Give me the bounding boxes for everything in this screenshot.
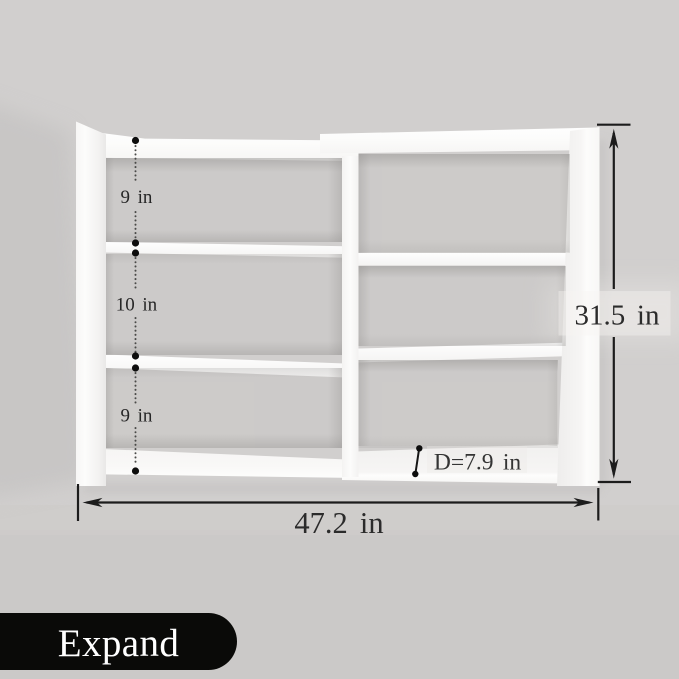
svg-text:10 in: 10 in — [116, 295, 158, 316]
svg-text:9 in: 9 in — [121, 406, 153, 427]
svg-text:31.5 in: 31.5 in — [575, 300, 660, 332]
svg-text:47.2 in: 47.2 in — [294, 506, 383, 540]
svg-text:D=7.9 in: D=7.9 in — [434, 450, 522, 476]
svg-text:9 in: 9 in — [121, 187, 153, 208]
